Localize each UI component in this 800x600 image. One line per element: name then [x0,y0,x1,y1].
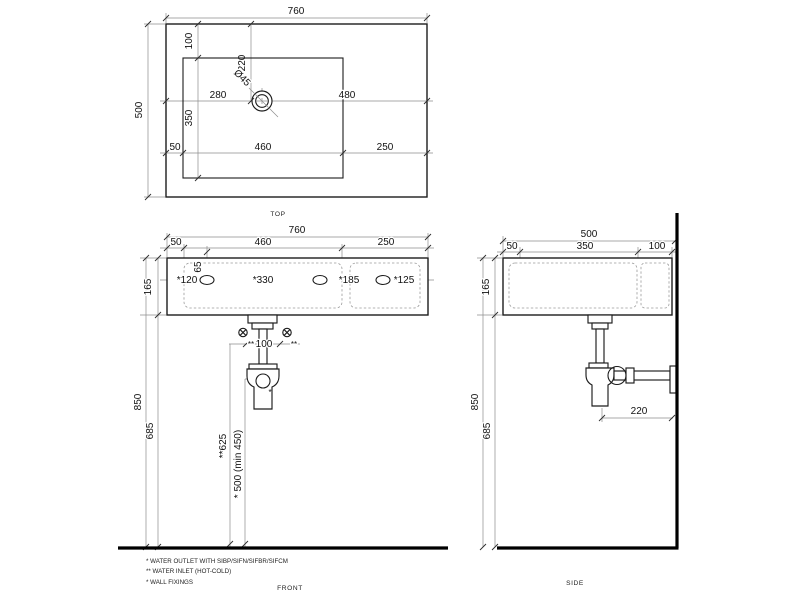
dim-front-overall-width: 760 [289,225,306,236]
trap-body [247,369,279,409]
dim-top-hole-to-right: 480 [339,90,356,101]
top-view-label: TOP [270,211,285,218]
dim-side-underside-height: 685 [482,422,493,439]
pipe-coupling-nut [626,368,634,383]
dim-side-body-height: 165 [481,278,492,295]
waste-flange [248,315,277,323]
dim-fixing-pitch-3: *185 [339,275,360,286]
dim-fixing-pitch-2: *330 [253,275,274,286]
dim-top-overall-depth: 500 [134,101,145,118]
dim-top-rim-left: 50 [169,142,181,153]
note-water-inlet: ** WATER INLET (HOT-COLD) [146,568,231,575]
dim-side-overall-depth: 500 [581,229,598,240]
front-view: * 760 50 460 250 165 65 *120 *330 *185 *… [118,225,448,592]
note-water-outlet: * WATER OUTLET WITH SIBP/SIFN/SIFBR/SIFC… [146,558,288,565]
trap-collar-side [589,363,608,368]
dim-top-bowl-width: 460 [255,142,272,153]
dim-top-deck-width: 250 [377,142,394,153]
waste-trap-side [586,315,676,406]
waste-flange-side [588,315,612,323]
side-view: 500 50 350 100 165 850 685 220 SIDE [470,213,679,587]
trap-body-side [586,368,614,406]
dim-side-front-rim: 50 [506,241,518,252]
waste-trap-front: * [247,315,279,409]
dim-top-overall-width: 760 [288,6,305,17]
dim-side-back-deck: 100 [649,241,666,252]
top-view: 760 500 100 220 Ø45 280 480 350 50 460 2… [134,6,433,218]
note-wall-fixings: * WALL FIXINGS [146,579,193,586]
dim-side-top-height: 850 [470,393,481,410]
dim-front-deck-width: 250 [378,237,395,248]
dim-front-underside-height: 685 [145,422,156,439]
dim-outlet-height: * 500 (min 450) [233,430,244,498]
outlet-asterisk-mark: * [268,388,271,397]
dim-front-body-height: 165 [143,278,154,295]
basin-side-outline [503,258,672,315]
basin-rim-outline [166,24,427,197]
dim-front-top-height: 850 [133,393,144,410]
dim-front-bowl-width: 460 [255,237,272,248]
dim-trap-to-wall: 220 [631,406,648,417]
wall-flange [670,366,676,393]
dim-inlet-spacing: 100 [256,339,273,350]
waste-nut [252,323,273,329]
dim-top-rim-to-bowl: 100 [184,32,195,49]
front-view-label: FRONT [277,585,303,592]
waste-tail-pipe-side [596,329,604,363]
dim-front-rim-left: 50 [170,237,182,248]
trap-outlet-pipe [614,371,670,380]
dim-fixing-drop: 65 [193,261,204,273]
inlet-mark-right: ** [291,340,297,349]
washbasin-drawing: 760 500 100 220 Ø45 280 480 350 50 460 2… [0,0,800,600]
dim-fixing-pitch-1: *120 [177,275,198,286]
waste-nut-side [592,323,608,329]
dim-top-bowl-depth: 350 [184,109,195,126]
trap-collar [249,364,277,369]
technical-drawing-sheet: 760 500 100 220 Ø45 280 480 350 50 460 2… [0,0,800,600]
inlet-mark-left: ** [248,340,254,349]
dim-fixing-pitch-4: *125 [394,275,415,286]
dim-side-bowl-depth: 350 [577,241,594,252]
dim-top-hole-from-left: 280 [210,90,227,101]
legend-notes: * WATER OUTLET WITH SIBP/SIFN/SIFBR/SIFC… [146,558,288,586]
dim-inlet-height: **625 [218,433,229,458]
basin-front-outline [167,258,428,315]
side-view-label: SIDE [566,580,584,587]
